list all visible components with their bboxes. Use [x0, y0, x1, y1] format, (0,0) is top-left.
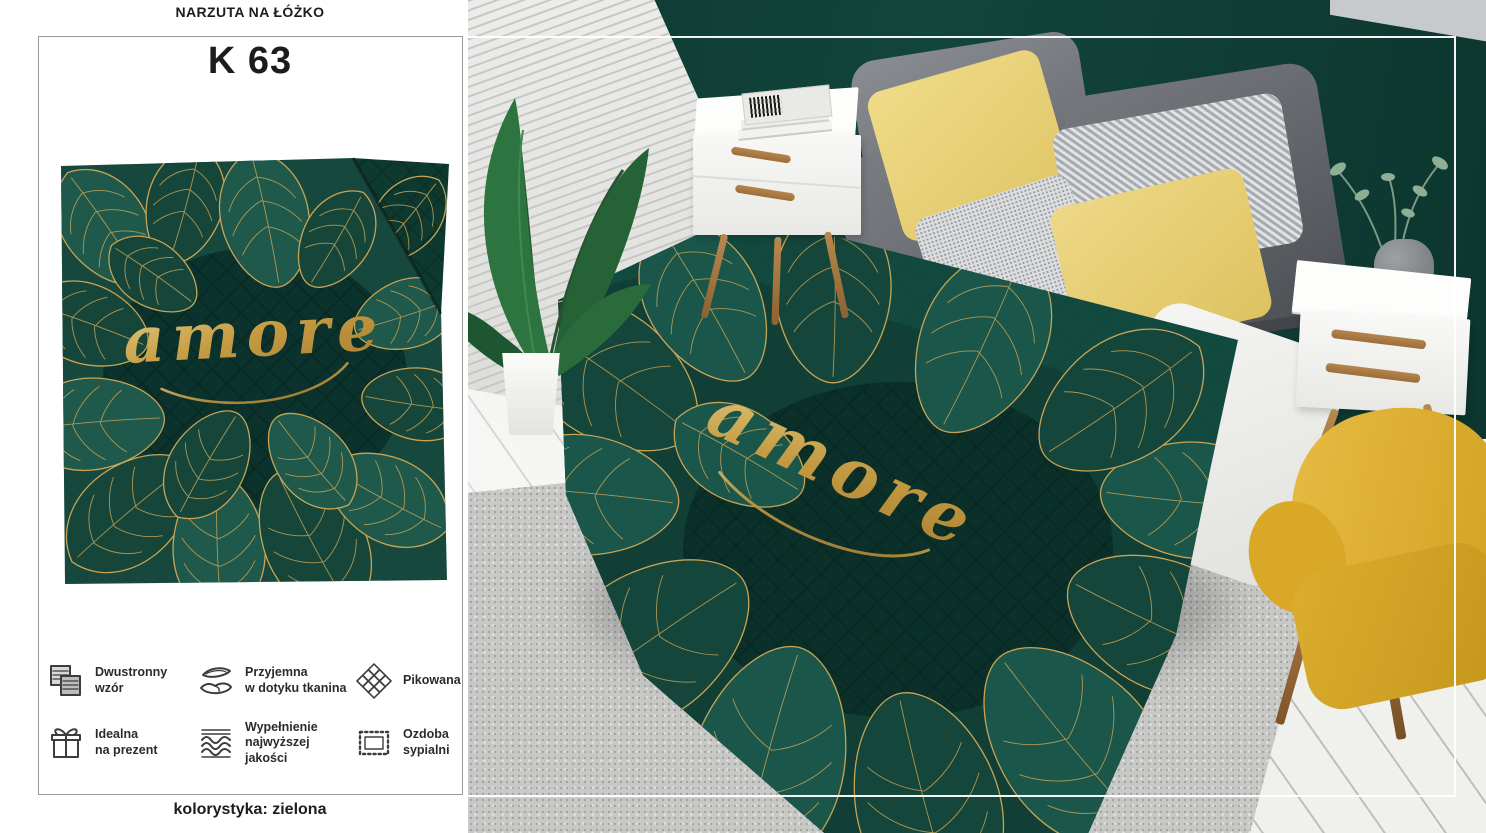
feature-label: w dotyku tkanina	[245, 681, 346, 697]
feature-label: Dwustronny	[95, 665, 167, 681]
bedspread-product-image: .lf{stroke:#c9a455;stroke-width:1.3} .lv…	[57, 156, 449, 586]
feature-gift: Idealna na prezent	[46, 723, 196, 763]
bedroom-photo: amore	[468, 0, 1486, 833]
feature-reversible: Dwustronny wzór	[46, 661, 196, 701]
product-code: K 63	[38, 40, 462, 83]
feature-label: Pikowana	[403, 673, 461, 689]
feature-filling: Wypełnienie najwyższej jakości	[196, 720, 354, 767]
feature-label: na prezent	[95, 743, 158, 759]
gift-icon	[46, 723, 86, 763]
feature-soft-touch: Przyjemna w dotyku tkanina	[196, 661, 354, 701]
feature-label: Idealna	[95, 727, 158, 743]
stamp-icon	[354, 723, 394, 763]
feature-label: najwyższej jakości	[245, 735, 354, 766]
feature-quilted: Pikowana	[354, 661, 456, 701]
feature-label: Ozdoba sypialni	[403, 727, 456, 758]
feature-decor: Ozdoba sypialni	[354, 723, 456, 763]
photo-frame-border	[468, 36, 1456, 797]
colorway-label: kolorystyka: zielona	[38, 801, 462, 819]
filling-icon	[196, 723, 236, 763]
feature-label: Przyjemna	[245, 665, 346, 681]
feature-label: wzór	[95, 681, 167, 697]
layers-icon	[46, 661, 86, 701]
product-info-panel: NARZUTA NA ŁÓŻKO K 63 .lf	[0, 0, 468, 833]
hand-fabric-icon	[196, 661, 236, 701]
quilt-icon	[354, 661, 394, 701]
feature-list: Dwustronny wzór Przyjemna w dotyku tkani…	[46, 650, 456, 774]
feature-label: Wypełnienie	[245, 720, 354, 736]
product-card: NARZUTA NA ŁÓŻKO K 63 .lf	[0, 0, 1486, 833]
category-label: NARZUTA NA ŁÓŻKO	[38, 4, 462, 20]
